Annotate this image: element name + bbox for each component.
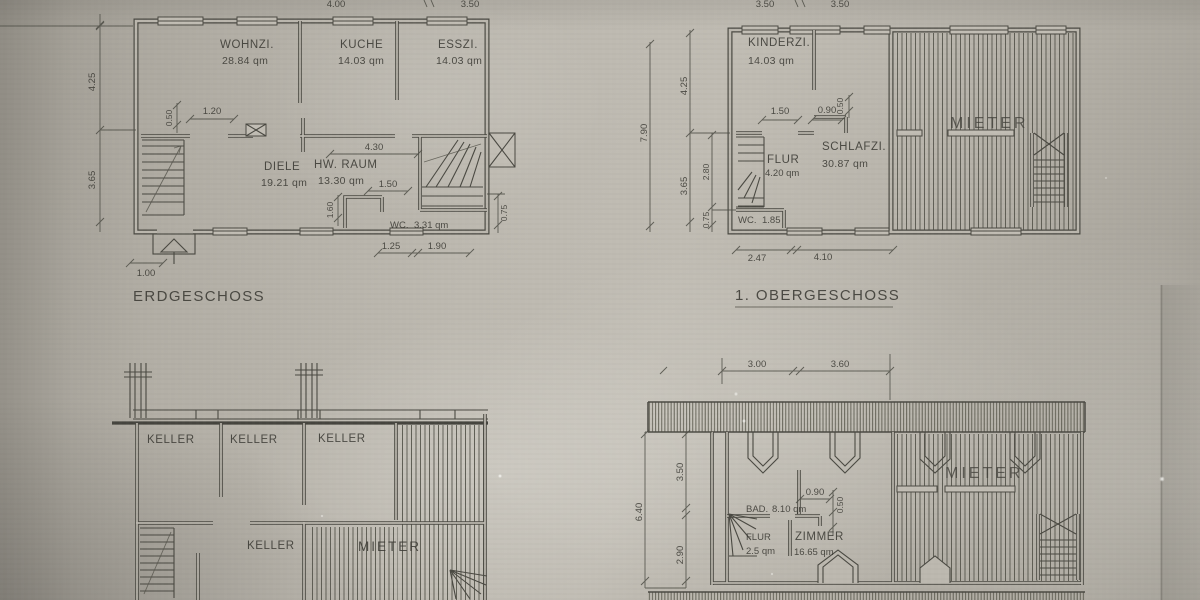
room-label-schlafzimmer: SCHLAFZI. — [822, 141, 886, 153]
dim-og-top-cut-b: 3.50 — [831, 0, 850, 10]
floor-plan-erdgeschoss: WOHNZI. 28.84 qm KÜCHE 14.03 qm ESSZI. 1… — [0, 0, 560, 320]
room-label-keller3: KELLER — [318, 433, 366, 445]
dim-og-left-lower: 3.65 — [679, 177, 690, 196]
floor-plan-photo: WOHNZI. 28.84 qm KÜCHE 14.03 qm ESSZI. 1… — [0, 0, 1200, 600]
room-area-zimmer: 16.65 qm — [794, 547, 834, 558]
dim-dg-left-upper: 3.50 — [675, 463, 686, 482]
room-area-flur: 4.20 qm — [765, 168, 799, 179]
eg-entry-porch — [153, 234, 195, 264]
dim-og-left-upper: 4.25 — [679, 77, 690, 96]
room-label-kinderzimmer: KINDERZI. — [748, 37, 810, 49]
room-label-flur: FLUR — [767, 154, 799, 166]
kg-staircase-left — [140, 528, 174, 598]
room-label-wc: WC. — [390, 220, 408, 231]
room-area-hwraum: 13.30 qm — [318, 175, 364, 187]
dim-left-lower: 3.65 — [87, 171, 98, 190]
room-area-og-wc: 1.85 — [762, 215, 781, 226]
room-label-og-mieter: MIETER — [950, 115, 1028, 132]
room-label-wohnzimmer: WOHNZI. — [220, 39, 274, 51]
kg-top-wall — [112, 410, 488, 423]
dim-dg-top-b: 3.60 — [831, 359, 850, 370]
dim-dg-total-left: 6.40 — [634, 503, 645, 522]
room-area-wohnzimmer: 28.84 qm — [222, 55, 268, 67]
room-area-kueche: 14.03 qm — [338, 55, 384, 67]
dg-roof-band-bottom — [648, 592, 1085, 600]
eg-walls — [136, 21, 487, 232]
dim-og-bottom-a: 2.47 — [748, 253, 767, 264]
dim-og-door: 1.50 — [771, 106, 790, 117]
dg-roof-band-top — [648, 402, 1085, 432]
dim-entry-width: 1.00 — [137, 268, 156, 279]
kg-mieter-hatch-center — [309, 527, 398, 600]
room-label-keller2: KELLER — [230, 434, 278, 446]
dim-bottom-a: 1.25 — [382, 241, 401, 252]
room-area-wc: 3.31 qm — [414, 220, 448, 231]
dim-opening: 1.50 — [379, 179, 398, 190]
room-label-zimmer: ZIMMER — [795, 531, 844, 543]
room-label-esszimmer: ESSZI. — [438, 39, 478, 51]
eg-interior-walls — [141, 21, 487, 228]
room-area-kinderzimmer: 14.03 qm — [748, 55, 794, 67]
room-label-bad: BAD. — [746, 504, 768, 515]
dim-og-inner-upper: 2.80 — [701, 163, 711, 180]
eg-staircase-right — [422, 140, 483, 206]
room-label-keller4: KELLER — [247, 540, 295, 552]
dim-door-width: 1.20 — [203, 106, 222, 117]
room-label-og-wc: WC. — [738, 215, 756, 226]
dim-bottom-b: 1.90 — [428, 241, 447, 252]
dim-dg-top-a: 3.00 — [748, 359, 767, 370]
plan-title-erdgeschoss: ERDGESCHOSS — [133, 288, 265, 305]
dim-wc-width: 1.60 — [325, 201, 335, 218]
eg-staircase-left — [142, 140, 184, 215]
dim-og-total-left: 7.90 — [639, 124, 650, 143]
paper-crease-shadow — [1163, 285, 1200, 600]
room-area-schlafzimmer: 30.87 qm — [822, 158, 868, 170]
floor-plan-dachgeschoss: 3.00 3.60 3.50 2.90 6.40 0.90 0.50 BAD. … — [590, 350, 1200, 600]
og-staircase-left — [736, 137, 764, 207]
room-label-keller1: KELLER — [147, 434, 195, 446]
plan-title-obergeschoss: 1. OBERGESCHOSS — [735, 287, 900, 304]
room-area-dg-flur: 2.5 qm — [746, 546, 775, 557]
room-area-diele: 19.21 qm — [261, 177, 307, 189]
room-label-dg-flur: FLUR — [746, 532, 771, 543]
room-label-diele: DIELE — [264, 161, 300, 173]
dim-dg-closet-d: 0.50 — [835, 496, 845, 513]
room-label-kg-mieter: MIETER — [358, 539, 421, 554]
dim-og-closet-w: 0.90 — [818, 105, 837, 116]
dim-og-closet-d: 0.50 — [835, 97, 845, 114]
floor-plan-obergeschoss: KINDERZI. 14.03 qm SCHLAFZI. 30.87 qm FL… — [600, 0, 1200, 320]
dim-top-cut-b: 3.50 — [461, 0, 480, 10]
dim-right-lower: 0.75 — [499, 204, 509, 221]
room-area-esszimmer: 14.03 qm — [436, 55, 482, 67]
room-area-bad: 8.10 qm — [772, 504, 806, 515]
room-label-kueche: KÜCHE — [340, 39, 383, 51]
dim-left-upper: 4.25 — [87, 73, 98, 92]
dim-og-bottom-b: 4.10 — [814, 252, 833, 263]
floor-plan-keller: KELLER KELLER KELLER KELLER MIETER — [60, 350, 580, 600]
dim-dg-left-lower: 2.90 — [675, 546, 686, 565]
dim-dg-closet-w: 0.90 — [806, 487, 825, 498]
room-label-hwraum: HW. RAUM — [314, 159, 378, 171]
dim-og-top-cut-a: 3.50 — [756, 0, 775, 10]
room-label-dg-mieter: MIETER — [945, 465, 1023, 482]
dim-diele-width: 4.30 — [365, 142, 384, 153]
dim-og-inner-lower: 0.75 — [701, 211, 711, 228]
dim-top-cut-a: 4.00 — [327, 0, 346, 10]
dim-niche-depth: 0.50 — [164, 109, 174, 126]
